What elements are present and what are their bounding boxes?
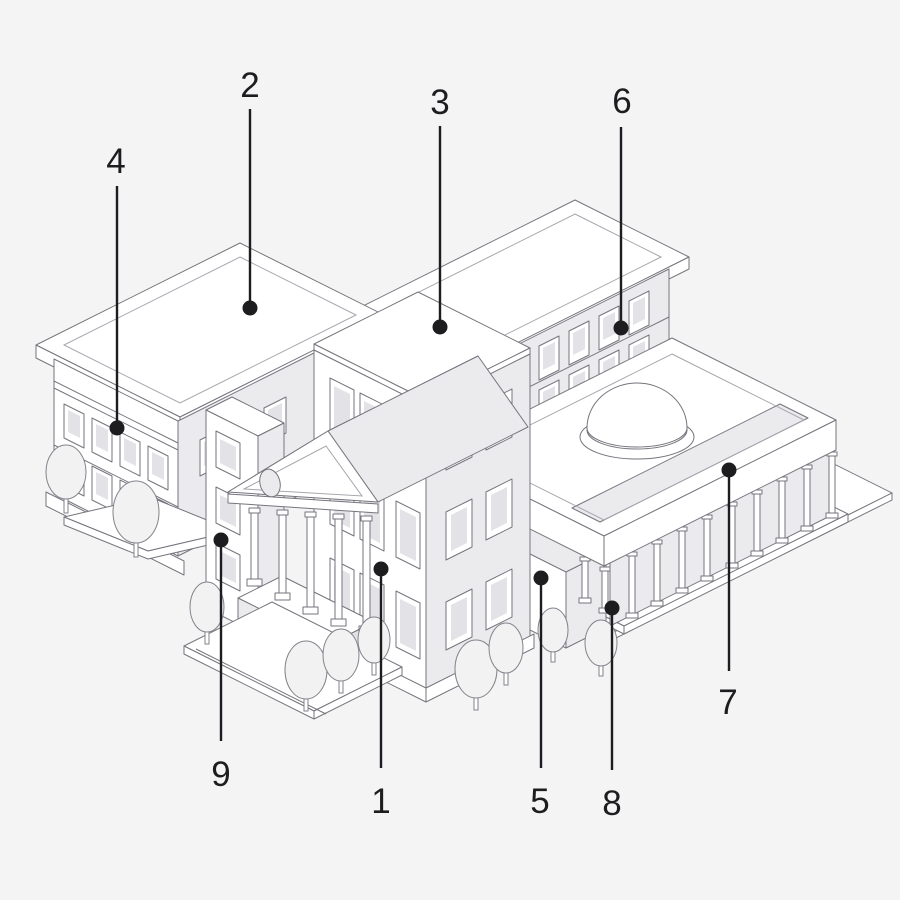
callout-number: 5 — [530, 782, 549, 821]
callout-number: 3 — [430, 83, 449, 122]
tree — [323, 629, 359, 681]
callout-dot — [433, 320, 448, 335]
callout-number: 1 — [371, 782, 390, 821]
callout-number: 4 — [106, 142, 125, 181]
tree — [46, 445, 86, 499]
callout-number: 7 — [718, 683, 737, 722]
tree — [489, 623, 523, 673]
campus-illustration: 2 3 6 4 9 1 5 — [0, 0, 900, 900]
callout-number: 9 — [211, 755, 230, 794]
pylon-window-glass — [220, 439, 236, 583]
callout-dot — [214, 533, 229, 548]
callout-dot — [722, 463, 737, 478]
tree — [190, 582, 224, 632]
tree — [358, 617, 390, 663]
diagram-stage: 2 3 6 4 9 1 5 — [0, 0, 900, 900]
callout-dot — [534, 571, 549, 586]
callout-number: 2 — [240, 66, 259, 105]
tree — [113, 481, 159, 543]
callout-number: 6 — [612, 82, 631, 121]
callout-dot — [605, 601, 620, 616]
callout-dot — [243, 301, 258, 316]
callout-dot — [614, 321, 629, 336]
callout-number: 8 — [602, 784, 621, 823]
callout-dot — [110, 421, 125, 436]
tree — [285, 641, 327, 699]
tree — [538, 608, 568, 652]
callout-dot — [374, 562, 389, 577]
